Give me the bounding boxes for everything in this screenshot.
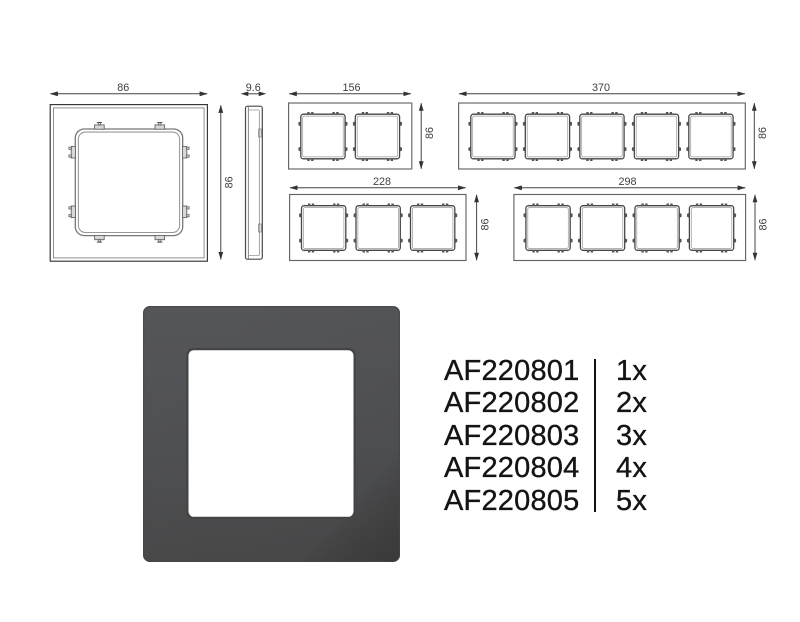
svg-text:86: 86 — [224, 176, 236, 188]
svg-text:156: 156 — [342, 82, 360, 94]
svg-text:370: 370 — [592, 82, 610, 94]
svg-text:86: 86 — [479, 218, 491, 230]
svg-text:86: 86 — [424, 127, 436, 139]
svg-text:86: 86 — [757, 127, 769, 139]
svg-text:228: 228 — [373, 176, 391, 188]
svg-text:298: 298 — [618, 176, 636, 188]
svg-text:9.6: 9.6 — [246, 82, 261, 94]
svg-text:86: 86 — [117, 82, 129, 94]
svg-text:86: 86 — [758, 218, 770, 230]
